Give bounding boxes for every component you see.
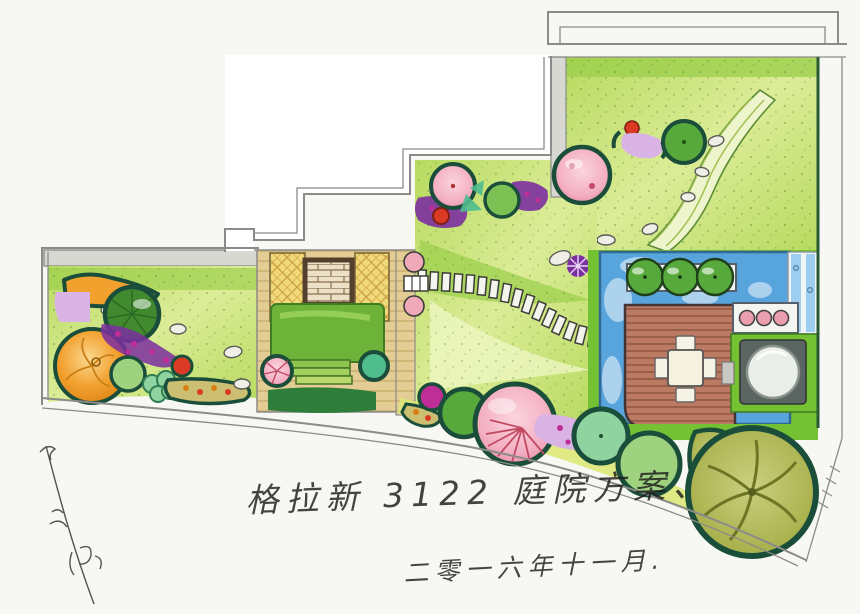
pink-ball-shrub <box>404 296 424 316</box>
pool-deck-zone <box>588 250 818 440</box>
gray-path-band <box>44 250 258 266</box>
shrub-red <box>172 356 192 376</box>
shrub-green <box>111 357 145 391</box>
shrub-green <box>485 183 519 217</box>
plan-drawing: 格拉新 3122 庭院方案、 二零一六年十一月. <box>0 0 860 614</box>
wood-deck <box>625 305 735 427</box>
hedge-flower-band <box>165 379 250 404</box>
spa-cover-circle <box>747 346 799 398</box>
spa-step <box>722 362 734 384</box>
left-garden-room <box>44 250 258 404</box>
paver-strip <box>396 250 415 415</box>
brick-wall-feature <box>305 260 352 304</box>
courtyard <box>257 250 415 413</box>
shrub-pink-court <box>262 356 292 386</box>
chair <box>676 388 695 402</box>
chair <box>655 358 668 378</box>
shrub-lilac <box>55 292 90 322</box>
stepping-stone <box>681 193 695 202</box>
garden-bench <box>404 276 428 291</box>
shrub-red <box>433 208 449 224</box>
chair <box>676 336 695 350</box>
shrub-teal-court <box>360 352 388 380</box>
bar-stool <box>740 311 755 326</box>
bar-stool <box>774 311 789 326</box>
garden-steps <box>288 360 352 384</box>
stepping-stone <box>597 235 615 245</box>
scanned-garden-plan: 格拉新 3122 庭院方案、 二零一六年十一月. <box>0 0 860 614</box>
dining-table <box>668 350 703 386</box>
court-hedge <box>268 387 376 413</box>
bar-stool <box>757 311 772 326</box>
bar-counter <box>733 303 798 333</box>
tree-pink-corner <box>554 147 610 203</box>
rock <box>170 324 186 334</box>
chair <box>703 358 716 378</box>
pink-ball-shrub <box>404 252 424 272</box>
planter-box <box>627 259 736 295</box>
spa <box>722 334 818 412</box>
